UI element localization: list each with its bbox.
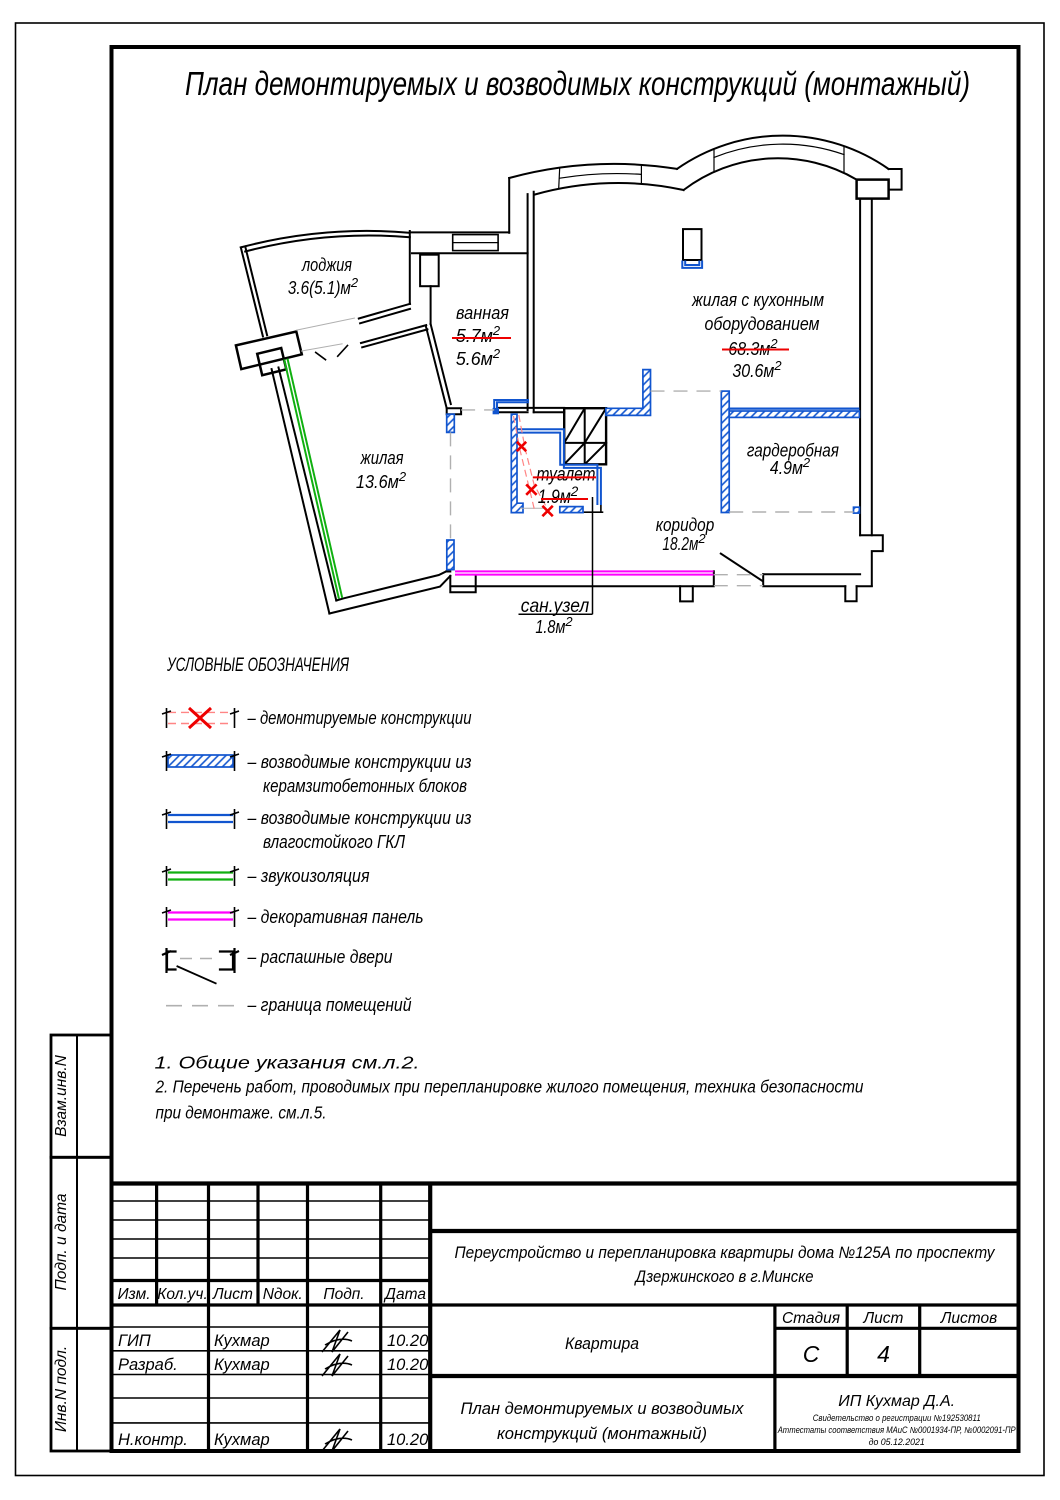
svg-text:1. Общие указания см.л.2.: 1. Общие указания см.л.2. xyxy=(155,1053,420,1073)
svg-text:жилая с кухонным: жилая с кухонным xyxy=(691,289,824,310)
svg-text:Инв.N подл.: Инв.N подл. xyxy=(53,1346,70,1432)
svg-text:ванная: ванная xyxy=(456,302,509,323)
svg-text:Лист: Лист xyxy=(863,1310,904,1327)
svg-text:до 05.12.2021: до 05.12.2021 xyxy=(869,1437,925,1447)
svg-text:Стадия: Стадия xyxy=(782,1310,840,1327)
svg-text:– возводимые конструкции из: – возводимые конструкции из xyxy=(247,751,472,772)
svg-text:2. Перечень работ, проводимых: 2. Перечень работ, проводимых при перепл… xyxy=(155,1077,864,1097)
svg-text:влагостойкого ГКЛ: влагостойкого ГКЛ xyxy=(263,831,405,852)
svg-text:конструкций (монтажный): конструкций (монтажный) xyxy=(497,1425,707,1443)
svg-text:– звукоизоляция: – звукоизоляция xyxy=(247,865,370,886)
svg-text:сан.узел: сан.узел xyxy=(521,596,590,617)
svg-text:3.6(5.1)м2: 3.6(5.1)м2 xyxy=(288,275,359,298)
svg-text:Дата: Дата xyxy=(383,1286,426,1303)
svg-text:Nдок.: Nдок. xyxy=(263,1286,303,1303)
svg-text:Н.контр.: Н.контр. xyxy=(118,1431,188,1449)
svg-text:10.20: 10.20 xyxy=(387,1431,429,1449)
svg-text:Дзержинского в г.Минске: Дзержинского в г.Минске xyxy=(634,1268,814,1286)
svg-text:Переустройство и перепланировк: Переустройство и перепланировка квартиры… xyxy=(455,1244,997,1262)
svg-text:10.20: 10.20 xyxy=(387,1356,429,1374)
svg-text:Лист: Лист xyxy=(212,1286,253,1303)
svg-text:Кухмар: Кухмар xyxy=(214,1356,270,1374)
svg-text:ИП Кухмар Д.А.: ИП Кухмар Д.А. xyxy=(838,1393,955,1410)
svg-text:Кухмар: Кухмар xyxy=(214,1332,270,1350)
svg-text:План демонтируемых и возводимы: План демонтируемых и возводимых конструк… xyxy=(185,65,970,102)
svg-text:УСЛОВНЫЕ ОБОЗНАЧЕНИЯ: УСЛОВНЫЕ ОБОЗНАЧЕНИЯ xyxy=(166,655,349,676)
svg-text:при демонтаже. см.л.5.: при демонтаже. см.л.5. xyxy=(156,1103,327,1123)
svg-text:Квартира: Квартира xyxy=(565,1334,639,1353)
svg-text:Кол.уч.: Кол.уч. xyxy=(157,1286,208,1303)
svg-text:– распашные двери: – распашные двери xyxy=(247,946,393,967)
svg-text:туалет: туалет xyxy=(537,464,596,486)
svg-text:Разраб.: Разраб. xyxy=(118,1356,178,1374)
svg-text:– граница помещений: – граница помещений xyxy=(247,994,412,1015)
svg-text:4: 4 xyxy=(877,1341,890,1367)
svg-text:оборудованием: оборудованием xyxy=(705,313,820,334)
svg-text:Листов: Листов xyxy=(940,1310,997,1327)
svg-text:10.20: 10.20 xyxy=(387,1332,429,1350)
svg-text:– декоративная панель: – декоративная панель xyxy=(247,906,424,927)
svg-text:– возводимые конструкции из: – возводимые конструкции из xyxy=(247,807,472,828)
svg-text:Свидетельство о регистрации №1: Свидетельство о регистрации №192530811 xyxy=(813,1413,981,1423)
svg-text:Аттестаты соответствия МАиС №0: Аттестаты соответствия МАиС №0001934-ПР,… xyxy=(777,1425,1016,1435)
svg-text:Изм.: Изм. xyxy=(117,1286,150,1303)
svg-text:Взам.инв.N: Взам.инв.N xyxy=(53,1054,70,1136)
svg-text:С: С xyxy=(803,1341,820,1367)
svg-text:– демонтируемые конструкции: – демонтируемые конструкции xyxy=(247,707,472,728)
svg-text:Подп. и дата: Подп. и дата xyxy=(53,1193,70,1290)
svg-text:План демонтируемых и возводимы: План демонтируемых и возводимых xyxy=(461,1400,745,1418)
svg-text:Подп.: Подп. xyxy=(323,1286,364,1303)
svg-text:Кухмар: Кухмар xyxy=(214,1431,270,1449)
svg-text:ГИП: ГИП xyxy=(118,1332,151,1350)
svg-text:жилая: жилая xyxy=(360,447,404,468)
svg-text:керамзитобетонных блоков: керамзитобетонных блоков xyxy=(263,775,467,796)
svg-text:лоджия: лоджия xyxy=(301,254,352,275)
